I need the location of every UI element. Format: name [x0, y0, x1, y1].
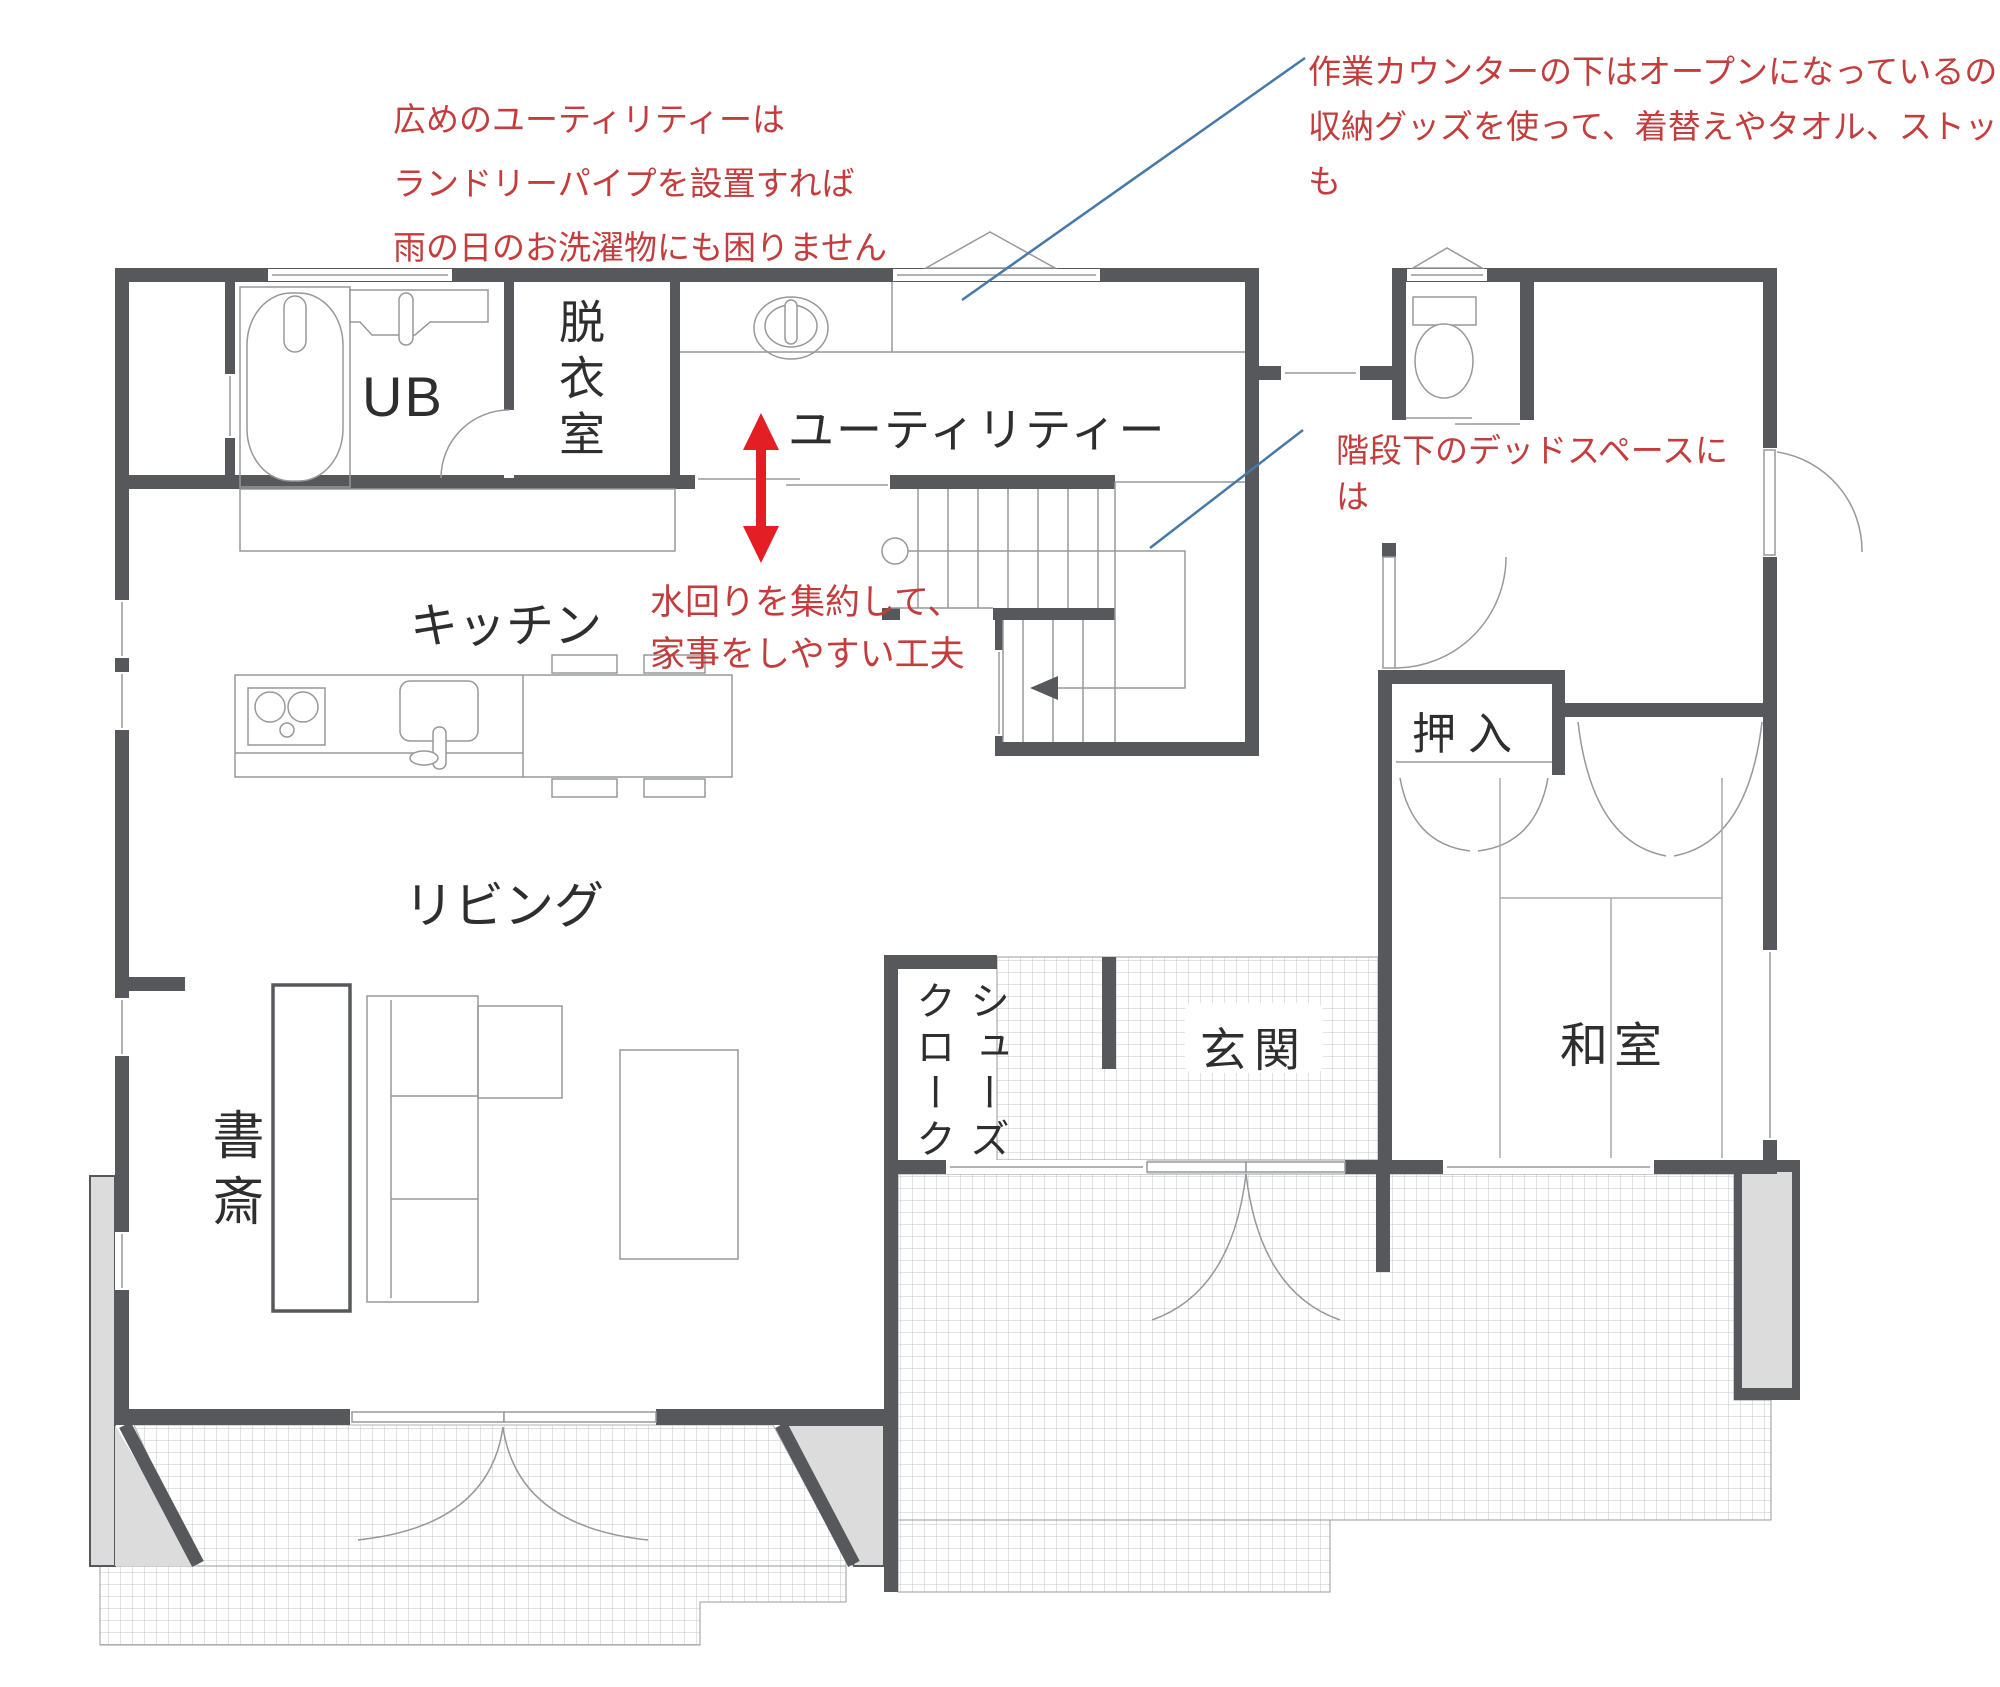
utility-annotation-line2: ランドリーパイプを設置すれば — [393, 152, 887, 216]
desk-icon — [273, 985, 350, 1311]
room-label-utility: ユーティリティー — [788, 394, 1166, 460]
utility-sink-icon — [754, 297, 828, 359]
counter-annotation-line3: も — [1308, 154, 2000, 209]
stairs-annotation-line1: 階段下のデッドスペースに — [1336, 428, 1728, 474]
room-label-shoes-closet-left: クローク — [903, 980, 961, 1164]
utility-annotation: 広めのユーティリティーは ランドリーパイプを設置すれば 雨の日のお洗濯物にも困り… — [393, 88, 887, 280]
room-label-kitchen: キッチン — [410, 586, 602, 656]
room-label-living: リビング — [404, 866, 604, 938]
stairs-note-leader-line — [1150, 430, 1303, 548]
kitchen-counter-icon — [235, 675, 732, 777]
floorplan-drawing — [0, 0, 2000, 1687]
room-label-genkan: 玄関 — [1200, 1014, 1308, 1080]
room-label-shosai: 書斎 — [196, 1108, 271, 1240]
counter-annotation-line2: 収納グッズを使って、着替えやタオル、ストック品 — [1308, 99, 2000, 154]
bathtub-icon — [240, 287, 350, 487]
mizumawari-annotation-line2: 家事をしやすい工夫 — [650, 629, 965, 681]
entrance-porch-floor — [898, 1174, 1771, 1592]
room-label-oshiire: 押入 — [1412, 698, 1524, 762]
living-table-icon — [620, 1050, 738, 1259]
utility-annotation-line3: 雨の日のお洗濯物にも困りません — [393, 216, 887, 280]
stairs-annotation-line2: は — [1336, 474, 1728, 520]
mizumawari-annotation: 水回りを集約して、 家事をしやすい工夫 — [650, 577, 965, 681]
stairs-annotation: 階段下のデッドスペースに は — [1336, 428, 1728, 520]
veranda-step — [1734, 1160, 1800, 1400]
floorplan-page: { "title": "1F間取り図", "rooms": { "ub": "U… — [0, 0, 2000, 1687]
ub-sink-icon — [350, 290, 488, 345]
bay-window-icon — [926, 232, 1055, 268]
sofa-icon — [367, 996, 562, 1302]
room-label-shoes-closet-right: シューズ — [957, 980, 1015, 1164]
room-label-datsuishitsu: 脱衣室 — [546, 298, 612, 466]
utility-annotation-line1: 広めのユーティリティーは — [393, 88, 887, 152]
terrace-floor — [100, 1425, 846, 1645]
counter-note-leader-line — [962, 58, 1305, 300]
bay-window-icon-2 — [1413, 248, 1482, 268]
room-label-washitsu: 和室 — [1560, 1006, 1668, 1076]
counter-annotation: 作業カウンターの下はオープンになっているので、 収納グッズを使って、着替えやタオ… — [1308, 44, 2000, 209]
counter-annotation-line1: 作業カウンターの下はオープンになっているので、 — [1308, 44, 2000, 99]
stairs-direction-arrow — [1030, 676, 1058, 700]
porch-wall-stub — [1376, 1174, 1390, 1272]
toilet-icon — [1413, 297, 1476, 398]
tatami-lines — [1500, 778, 1722, 1158]
mizumawari-annotation-line1: 水回りを集約して、 — [650, 577, 965, 629]
room-label-ub: UB — [362, 364, 444, 429]
